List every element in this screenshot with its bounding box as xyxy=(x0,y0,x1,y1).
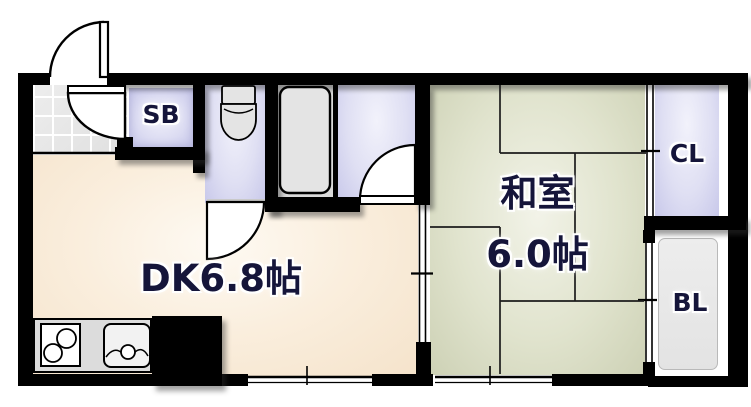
room-toilet xyxy=(205,85,265,203)
entrance-door xyxy=(50,22,108,77)
kitchen-counter xyxy=(33,318,152,373)
entrance-genkan-tile xyxy=(33,85,127,155)
wall-genkan-door-stub xyxy=(117,137,133,154)
room-bath xyxy=(278,85,333,200)
wall-sliding-stub-bottom xyxy=(416,342,431,376)
kitchen-counter-end-block xyxy=(152,316,222,386)
wall-left xyxy=(18,73,33,386)
wall-top-main xyxy=(107,73,748,85)
wall-bath-washroom xyxy=(333,85,338,198)
floor-plan: SB DK6.8帖 和室 6.0帖 CL BL xyxy=(0,0,751,407)
wall-bottom-balcony xyxy=(648,376,748,387)
wall-closet-balcony xyxy=(644,216,746,230)
label-washitsu-name: 和室 xyxy=(430,175,645,212)
label-washitsu-size: 6.0帖 xyxy=(430,236,645,273)
label-shoe-box: SB xyxy=(129,102,193,127)
wall-balcony-stub-bottom xyxy=(643,362,655,376)
wall-toilet-bath xyxy=(265,85,278,212)
label-balcony: BL xyxy=(652,290,728,315)
label-closet: CL xyxy=(655,141,719,166)
wall-bottom-washitsu xyxy=(552,374,648,386)
wall-under-bath xyxy=(267,197,360,212)
room-washitsu xyxy=(430,85,645,375)
room-washroom xyxy=(338,85,415,205)
label-dk: DK6.8帖 xyxy=(80,260,362,297)
wall-washroom-washitsu xyxy=(415,85,430,205)
wall-right xyxy=(728,73,748,387)
